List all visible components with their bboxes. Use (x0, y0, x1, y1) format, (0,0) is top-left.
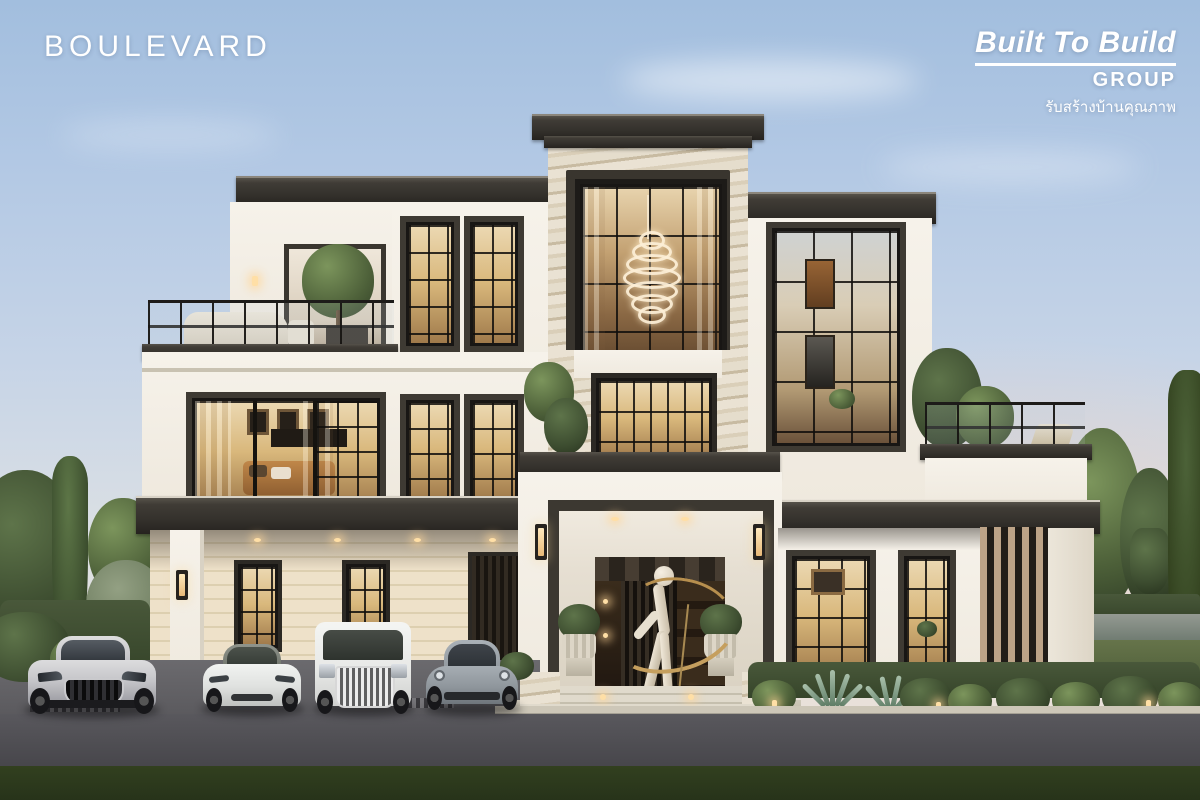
shelf-light (603, 599, 608, 604)
stair-window (406, 222, 454, 346)
downlight (414, 538, 421, 542)
wall-sconce (176, 570, 188, 600)
car-headlight (391, 664, 407, 678)
fiddle-leaf-plant (544, 398, 588, 454)
throw-blanket (271, 467, 291, 479)
left-eave (136, 496, 558, 534)
car-splitter (42, 700, 142, 708)
carport-ceiling-shadow (150, 530, 520, 570)
step-light (600, 694, 606, 700)
car-intake (231, 694, 273, 701)
car-headlight (319, 664, 335, 678)
stair-window (470, 400, 518, 502)
window-mullion (253, 401, 257, 506)
urn-pedestal (566, 658, 592, 676)
living-room-window (192, 398, 380, 509)
urn (562, 634, 596, 660)
terrace-sconce-light (252, 276, 258, 286)
curtain (697, 187, 719, 351)
downlight (489, 538, 496, 542)
wall-sconce (753, 524, 765, 560)
car-wheel (282, 688, 298, 712)
downlight (681, 517, 689, 521)
tower-cornice-step (544, 136, 752, 148)
brand-name: Built To Build (975, 26, 1176, 66)
road (0, 714, 1200, 770)
car-wheel (317, 690, 333, 714)
wall-groove (142, 368, 548, 372)
car-windshield (323, 630, 403, 660)
downlight (611, 517, 619, 521)
marble-pilaster (722, 350, 748, 462)
wall-art (247, 409, 269, 435)
car-wheel (134, 688, 154, 714)
step-light (688, 694, 694, 700)
downlight (334, 538, 341, 542)
carport-window (238, 564, 278, 648)
brand-group: GROUP (975, 69, 1176, 92)
car-headlight (434, 670, 445, 681)
wall-art (811, 569, 845, 595)
slat-feature-wall (980, 527, 1050, 677)
stair-window (406, 400, 454, 502)
cushion (249, 465, 267, 477)
render-scene: BOULEVARD Built To Build GROUP รับสร้างบ… (0, 0, 1200, 800)
grass-verge (0, 766, 1200, 800)
stair-window (470, 222, 518, 346)
double-height-window (772, 228, 900, 446)
downlight (254, 538, 261, 542)
indoor-plant (917, 621, 937, 637)
indoor-plant (829, 389, 855, 409)
wall-sconce (535, 524, 547, 560)
curtain (195, 401, 231, 506)
car-wheel (427, 686, 442, 710)
project-title: BOULEVARD (44, 30, 272, 64)
car-wheel (206, 688, 222, 712)
car-wheel (502, 686, 517, 710)
foyer-window (596, 378, 712, 462)
car-luxury-mpv (315, 618, 411, 716)
wall-art (805, 259, 835, 309)
pine-tree (1130, 528, 1170, 594)
car-headlight (499, 670, 510, 681)
shelf-light (603, 633, 608, 638)
car-grey-coupe (426, 640, 518, 716)
car-white-sedan (203, 644, 301, 716)
car-windshield (61, 640, 125, 662)
car-chrome-grille (335, 666, 395, 708)
terrace-parapet (925, 458, 1087, 506)
cloud (620, 60, 920, 100)
agave-leaf (830, 670, 835, 706)
cloud (60, 120, 280, 150)
curtain (583, 187, 605, 351)
wall-art (805, 335, 835, 389)
car-wheel (30, 688, 50, 714)
car-silver-sedan (28, 636, 156, 718)
chandelier-ring (638, 306, 666, 324)
car-wheel (393, 690, 409, 714)
tower-spandrel (560, 350, 736, 378)
cloud (880, 150, 1140, 184)
window-grid (317, 401, 377, 506)
brand-tagline-thai: รับสร้างบ้านคุณภาพ (975, 95, 1176, 119)
car-intake (444, 692, 500, 700)
brand-logo: Built To Build GROUP รับสร้างบ้านคุณภาพ (975, 26, 1176, 119)
tower-window (580, 184, 722, 354)
